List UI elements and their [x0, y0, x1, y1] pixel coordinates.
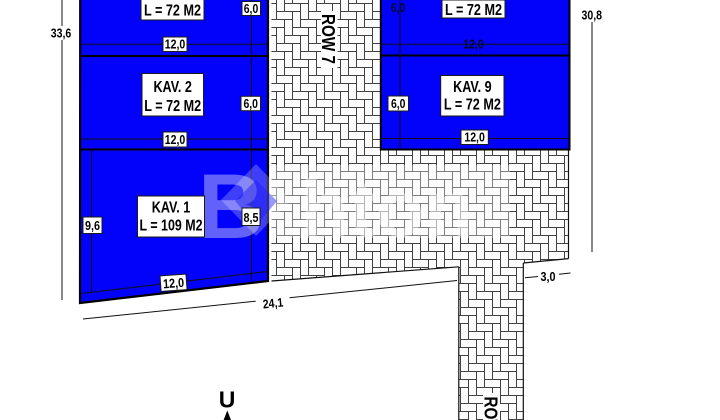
- svg-text:12,0: 12,0: [165, 133, 186, 147]
- svg-text:12,0: 12,0: [165, 38, 186, 52]
- svg-text:6,0: 6,0: [391, 97, 406, 111]
- svg-text:L = 72 M2: L = 72 M2: [144, 98, 201, 115]
- svg-text:hton: hton: [300, 164, 473, 253]
- svg-text:3,0: 3,0: [541, 270, 556, 284]
- svg-text:ROW 8: ROW 8: [481, 397, 501, 420]
- svg-text:L = 72 M2: L = 72 M2: [444, 96, 501, 113]
- svg-text:8,5: 8,5: [244, 210, 259, 225]
- svg-text:KAV. 1: KAV. 1: [152, 199, 191, 216]
- svg-text:12,0: 12,0: [163, 275, 185, 291]
- svg-text:L = 109 M2: L = 109 M2: [140, 218, 203, 235]
- svg-text:9,6: 9,6: [85, 218, 100, 233]
- svg-text:L = 72 M2: L = 72 M2: [445, 2, 502, 19]
- svg-text:33,6: 33,6: [51, 27, 72, 41]
- svg-text:ROW 7: ROW 7: [318, 14, 338, 64]
- svg-text:6,0: 6,0: [391, 1, 406, 15]
- svg-text:12,0: 12,0: [463, 38, 484, 52]
- svg-text:24,1: 24,1: [262, 296, 284, 312]
- svg-text:6,0: 6,0: [244, 2, 259, 16]
- svg-text:U: U: [219, 387, 236, 413]
- svg-text:6,0: 6,0: [243, 97, 258, 111]
- svg-text:30,8: 30,8: [582, 9, 603, 23]
- svg-text:12,0: 12,0: [464, 131, 485, 145]
- svg-text:KAV. 2: KAV. 2: [153, 79, 192, 96]
- svg-text:L = 72 M2: L = 72 M2: [144, 3, 201, 20]
- svg-text:KAV. 9: KAV. 9: [453, 79, 492, 96]
